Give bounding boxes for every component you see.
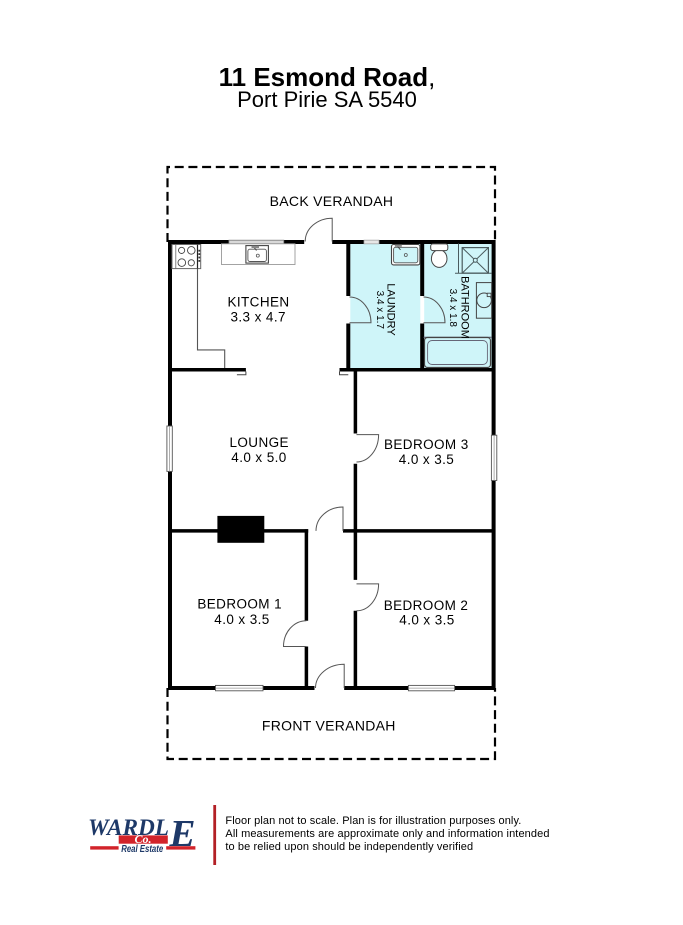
svg-text:LAUNDRY: LAUNDRY [385,283,397,336]
svg-text:LOUNGE: LOUNGE [229,435,288,450]
svg-text:Real Estate: Real Estate [121,843,163,855]
svg-text:3.4 x 1.8: 3.4 x 1.8 [447,289,458,328]
svg-text:BATHROOM: BATHROOM [458,276,470,339]
svg-text:4.0 x 3.5: 4.0 x 3.5 [399,613,454,628]
svg-text:3.4 x 1.7: 3.4 x 1.7 [374,291,385,330]
svg-text:4.0 x 5.0: 4.0 x 5.0 [231,450,286,465]
svg-text:BEDROOM 1: BEDROOM 1 [197,597,282,612]
svg-text:4.0 x 3.5: 4.0 x 3.5 [399,452,454,467]
svg-text:KITCHEN: KITCHEN [227,294,289,309]
svg-text:3.3 x 4.7: 3.3 x 4.7 [231,310,286,325]
svg-text:BEDROOM 2: BEDROOM 2 [384,598,469,613]
svg-text:BEDROOM 3: BEDROOM 3 [384,437,469,452]
svg-text:4.0 x 3.5: 4.0 x 3.5 [214,612,269,627]
svg-text:FRONT VERANDAH: FRONT VERANDAH [262,718,396,734]
svg-text:BACK VERANDAH: BACK VERANDAH [270,193,394,209]
